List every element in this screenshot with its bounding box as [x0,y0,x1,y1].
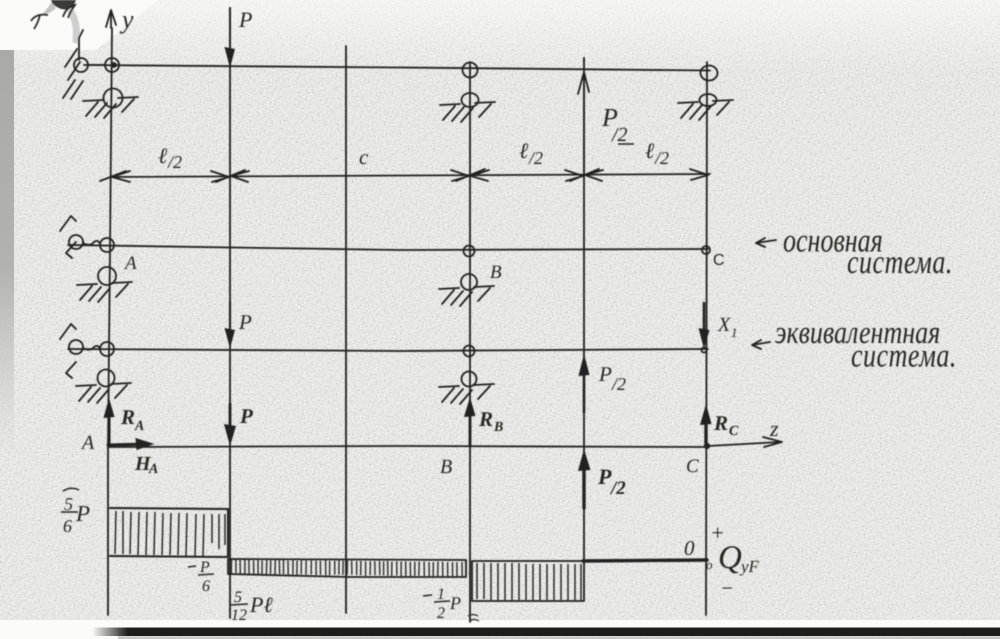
svg-text:yF: yF [739,557,760,576]
svg-text:6: 6 [202,578,210,595]
svg-text:/2: /2 [611,374,626,394]
svg-text:P: P [238,310,252,334]
svg-text:/2: /2 [611,124,628,146]
svg-text:P: P [449,593,461,613]
svg-text:o: o [706,557,713,572]
svg-text:z: z [769,416,779,441]
svg-text:B: B [493,420,503,435]
svg-text:C: C [686,456,699,477]
svg-text:C: C [729,424,739,439]
svg-text:B: B [440,456,452,478]
svg-text:R: R [478,407,493,431]
svg-text:P: P [238,7,252,32]
svg-text:/2: /2 [609,478,626,499]
svg-text:5: 5 [234,589,242,606]
svg-text:P: P [598,362,612,386]
svg-text:c: c [359,145,369,169]
svg-text:Q: Q [718,540,742,576]
svg-text:ℓ: ℓ [158,143,168,168]
svg-text:система.: система. [847,243,953,281]
svg-text:5: 5 [64,494,73,514]
svg-text:система.: система. [851,337,957,375]
svg-text:1: 1 [731,325,738,340]
svg-text:P: P [75,501,90,526]
svg-text:P: P [199,559,210,576]
svg-text:/2: /2 [654,148,669,168]
svg-text:0: 0 [684,536,695,560]
svg-text:2: 2 [437,605,445,622]
svg-text:A: A [148,462,158,477]
svg-text:Pℓ: Pℓ [249,592,273,617]
svg-text:A: A [80,432,95,454]
svg-text:/2: /2 [528,148,543,168]
svg-text:C: C [713,252,725,269]
svg-text:/2: /2 [167,152,182,172]
svg-text:A: A [134,419,144,434]
svg-text:ℓ: ℓ [519,138,529,163]
svg-text:R: R [120,405,135,429]
svg-text:1: 1 [437,586,445,603]
svg-text:6: 6 [63,516,72,536]
svg-text:B: B [490,262,502,283]
svg-text:ℓ: ℓ [645,138,655,163]
svg-text:P: P [239,404,253,428]
svg-text:P: P [597,464,612,489]
svg-text:X: X [717,314,731,336]
svg-text:A: A [123,253,137,274]
svg-text:R: R [713,411,728,435]
svg-text:−: − [720,576,734,600]
svg-text:12: 12 [231,607,247,624]
svg-text:y: y [119,5,134,34]
